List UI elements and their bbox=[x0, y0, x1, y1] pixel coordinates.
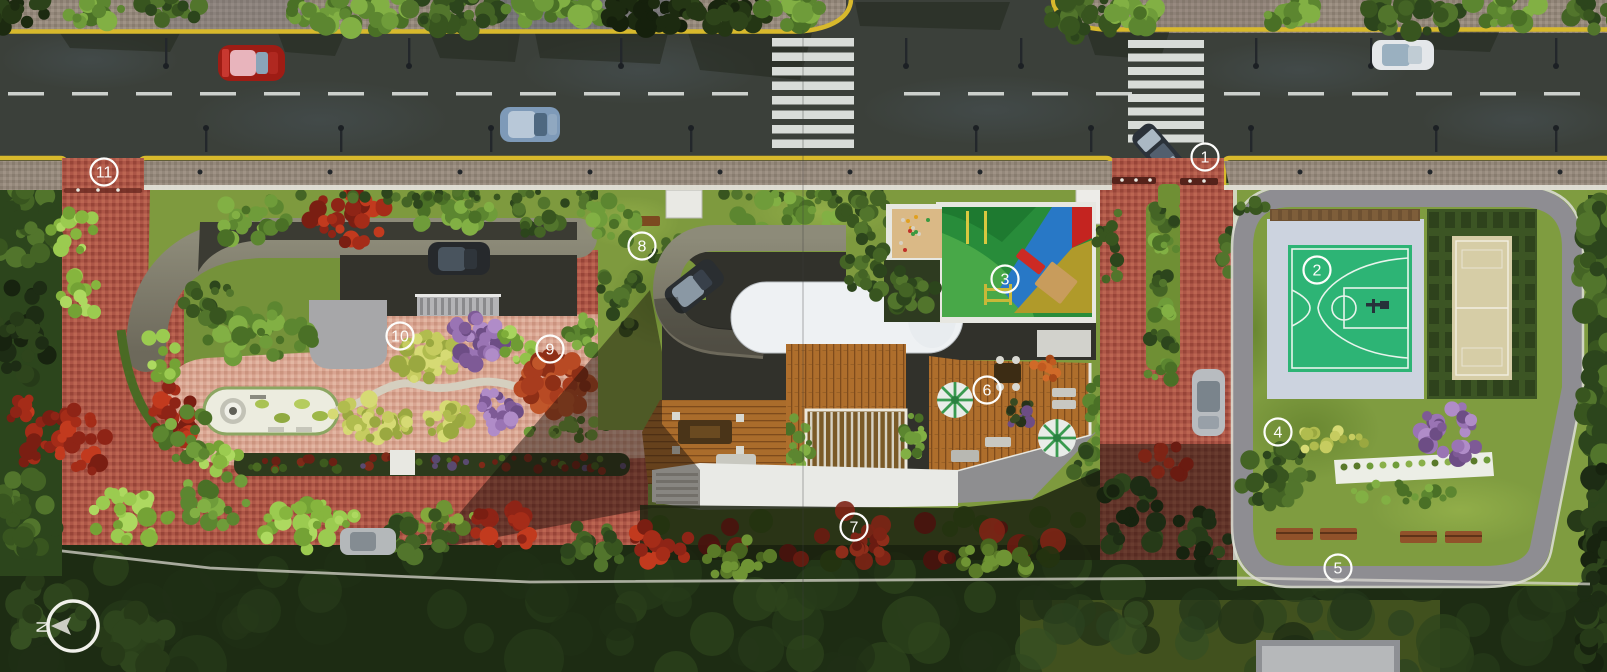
svg-text:5: 5 bbox=[1334, 561, 1343, 578]
svg-text:4: 4 bbox=[1274, 425, 1283, 442]
svg-text:1: 1 bbox=[1201, 150, 1210, 167]
svg-text:8: 8 bbox=[638, 239, 647, 256]
svg-text:2: 2 bbox=[1313, 263, 1322, 280]
svg-text:10: 10 bbox=[391, 329, 409, 346]
svg-text:3: 3 bbox=[1001, 272, 1010, 289]
svg-text:6: 6 bbox=[983, 383, 992, 400]
svg-text:N: N bbox=[33, 621, 52, 633]
svg-text:9: 9 bbox=[546, 342, 555, 359]
svg-text:7: 7 bbox=[850, 520, 859, 537]
svg-text:11: 11 bbox=[96, 165, 113, 182]
